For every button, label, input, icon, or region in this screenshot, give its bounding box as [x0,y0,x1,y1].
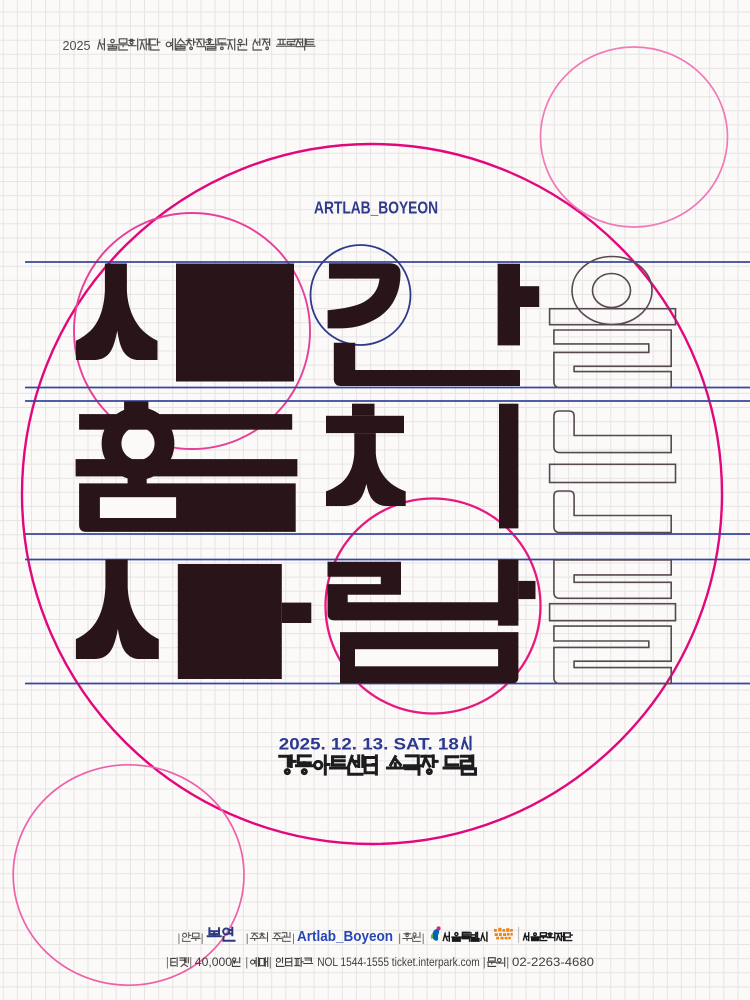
svg-text:2025. 12. 13. SAT. 18: 2025. 12. 13. SAT. 18 [279,735,459,754]
svg-text:2025: 2025 [63,39,91,53]
svg-text:|: | [292,933,295,945]
svg-text:|: | [246,933,249,945]
svg-text:|: | [506,957,509,969]
svg-text:Artlab_Boyeon: Artlab_Boyeon [297,929,393,945]
svg-text:02-2263-4680: 02-2263-4680 [512,955,594,969]
svg-text:|: | [483,957,486,969]
svg-text:|: | [422,933,425,945]
svg-text:|: | [189,957,192,969]
svg-text:|: | [245,957,248,969]
svg-text:|: | [166,957,169,969]
svg-text:|: | [178,933,181,945]
svg-text:40,000: 40,000 [195,955,232,969]
svg-text:ARTLAB_BOYEON: ARTLAB_BOYEON [314,198,438,218]
svg-text:|: | [201,933,204,945]
svg-text:|: | [398,933,401,945]
svg-text:|: | [269,957,272,969]
svg-text:NOL 1544-1555 ticket.interpark: NOL 1544-1555 ticket.interpark.com [317,955,480,969]
